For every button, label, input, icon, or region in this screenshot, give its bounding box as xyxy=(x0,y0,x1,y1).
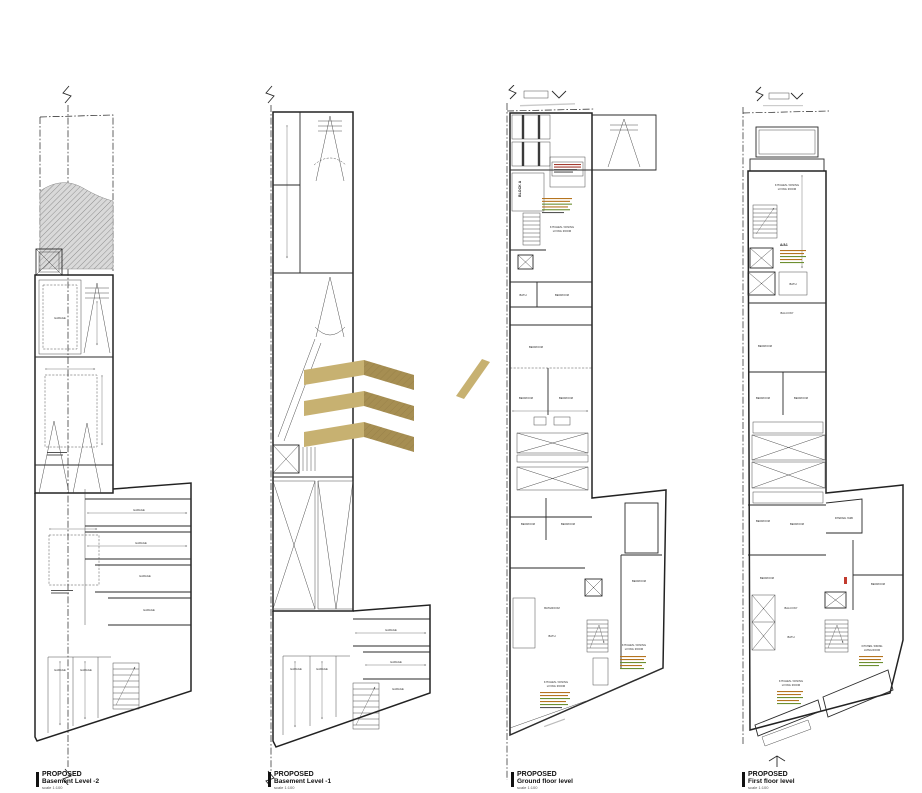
room-label: LIVING ROOM xyxy=(782,683,800,687)
title-block-basement-1: PROPOSED Basement Level -1 scale 1:100 xyxy=(268,771,331,790)
room-label: BATH xyxy=(787,635,794,639)
stairs-symbol xyxy=(113,663,139,709)
room-label: BEDROOM xyxy=(758,344,772,348)
room-label: KITCHEN / DINING xyxy=(775,183,799,187)
room-label: KITCHEN / DINING xyxy=(544,680,568,684)
room-label: LIVING ROOM xyxy=(864,649,880,652)
stairs-symbol xyxy=(753,205,777,238)
room-label: GARAGE xyxy=(80,668,92,672)
footer-level: First floor level xyxy=(748,778,795,785)
terrace-edge xyxy=(762,720,811,746)
block-label: BLOCK A xyxy=(518,180,522,197)
internal-yard xyxy=(752,435,825,488)
footer-scale: scale 1:100 xyxy=(517,785,573,790)
footer-scale: scale 1:100 xyxy=(42,785,99,790)
ramp-symbol xyxy=(84,283,110,353)
room-label: BEDROOM xyxy=(559,396,573,400)
terrace-grid xyxy=(512,115,550,166)
schedule-note-lines xyxy=(540,692,570,708)
room-label: BEDROOM xyxy=(871,582,885,586)
break-line-icon xyxy=(63,86,71,103)
terrace-grid xyxy=(625,503,658,553)
terrace-grid xyxy=(759,130,815,154)
room-label: LIVING ROOM xyxy=(625,647,643,651)
footer-proposed: PROPOSED xyxy=(517,771,573,778)
room-label: GARAGE xyxy=(290,667,302,671)
gold-ribbon-bars xyxy=(304,360,414,452)
floor-plan-basement-2: GARAGE GARAGE GARAGE GARAGE GARAGE GARAG… xyxy=(23,85,218,785)
room-label: KITCHEN / DINING xyxy=(779,679,803,683)
footer-level: Basement Level -2 xyxy=(42,778,99,785)
title-block-basement-2: PROPOSED Basement Level -2 scale 1:100 xyxy=(36,771,99,790)
title-block-first: PROPOSED First floor level scale 1:100 xyxy=(742,771,795,790)
ground-floor-drawing: BLOCK A KITCHEN / DINING LIVING ROOM BAT… xyxy=(496,85,711,790)
unit-label: A/A1 xyxy=(780,243,788,247)
courtyard-grid xyxy=(517,433,588,490)
footer-level: Basement Level -1 xyxy=(274,778,331,785)
ramp-symbol xyxy=(39,421,69,493)
void-shaft xyxy=(752,595,775,650)
room-label: LIVING ROOM xyxy=(547,684,565,688)
room-label: BATH xyxy=(519,293,526,297)
ramp-symbol xyxy=(314,116,346,181)
room-label: LIVING ROOM xyxy=(778,187,796,191)
floor-plan-ground: BLOCK A KITCHEN / DINING LIVING ROOM BAT… xyxy=(496,85,711,790)
lift-shaft-symbol xyxy=(825,592,846,608)
room-label: BEDROOM xyxy=(794,396,808,400)
title-bar xyxy=(36,772,39,787)
basement-2-drawing: GARAGE GARAGE GARAGE GARAGE GARAGE GARAG… xyxy=(23,85,218,785)
room-label: GARAGE xyxy=(139,574,151,578)
lift-shaft-symbol xyxy=(748,248,775,295)
shaft-grid xyxy=(513,598,535,648)
title-bar xyxy=(742,772,745,787)
footer-proposed: PROPOSED xyxy=(748,771,795,778)
stairs-symbol xyxy=(825,620,848,652)
room-label: GARAGE xyxy=(316,667,328,671)
room-label: BALCONY xyxy=(780,311,793,315)
room-label: BALCONY xyxy=(784,606,797,610)
room-label: GARAGE xyxy=(385,628,397,632)
room-label: BEDROOM xyxy=(632,579,646,583)
room-label: BEDROOM xyxy=(555,293,569,297)
break-line-icon xyxy=(266,86,274,103)
terrace-grid xyxy=(823,670,893,717)
room-label: KITCHEN / DINING xyxy=(622,643,646,647)
room-label: GARAGE xyxy=(54,668,66,672)
footer-proposed: PROPOSED xyxy=(42,771,99,778)
schedule-note-lines xyxy=(777,691,803,704)
north-arrow-icon xyxy=(769,756,785,767)
title-bar xyxy=(268,772,271,787)
room-label: KITCHEN / DINING xyxy=(862,645,883,648)
balcony-grid xyxy=(753,492,823,503)
room-label: BEDROOM xyxy=(561,522,575,526)
room-label: BATH xyxy=(789,282,796,286)
room-label: GARAGE xyxy=(133,508,145,512)
ramp-symbol xyxy=(315,277,345,337)
room-label: BEDROOM xyxy=(790,522,804,526)
footer-level: Ground floor level xyxy=(517,778,573,785)
room-label: GARAGE xyxy=(390,660,402,664)
micro-note xyxy=(47,452,67,456)
room-label: BATH xyxy=(548,634,555,638)
first-floor-drawing: KITCHEN / DINING LIVING ROOM A/A1 BATH B… xyxy=(733,85,922,790)
gold-slash xyxy=(456,359,490,399)
street-name-faint xyxy=(544,718,565,727)
stairs-symbol xyxy=(587,620,608,652)
footer-scale: scale 1:100 xyxy=(748,785,795,790)
lift-shaft-symbol xyxy=(518,255,533,269)
street-arrow-icons xyxy=(509,85,575,106)
room-label: INTERNAL YARD xyxy=(835,517,853,520)
room-label: GARAGE xyxy=(54,316,66,320)
room-label: BEDROOM xyxy=(529,345,543,349)
schedule-note-lines xyxy=(859,656,883,666)
red-note-lines xyxy=(554,164,581,173)
floor-plan-first: KITCHEN / DINING LIVING ROOM A/A1 BATH B… xyxy=(733,85,922,790)
lift-shaft-symbol xyxy=(585,579,602,596)
ramp-symbol xyxy=(73,423,101,493)
balcony-grid xyxy=(750,159,824,171)
room-label: KITCHEN / DINING xyxy=(550,225,574,229)
balcony-grid xyxy=(753,422,823,433)
title-block-ground: PROPOSED Ground floor level scale 1:100 xyxy=(511,771,573,790)
footer-scale: scale 1:100 xyxy=(274,785,331,790)
room-label: BEDROOM xyxy=(756,396,770,400)
room-label: BEDROOM xyxy=(756,519,770,523)
stairs-symbol xyxy=(523,213,540,245)
rock-hatch xyxy=(40,183,113,269)
stairs-symbol xyxy=(353,683,379,729)
terrace-grid xyxy=(755,700,821,736)
schedule-note-lines xyxy=(542,198,572,213)
drawing-sheet: GARAGE GARAGE GARAGE GARAGE GARAGE GARAG… xyxy=(0,0,922,793)
schedule-note-lines xyxy=(620,656,646,669)
room-label: LIVING ROOM xyxy=(553,229,571,233)
brand-watermark-logo xyxy=(298,348,503,466)
room-label: GARAGE xyxy=(143,608,155,612)
street-arrow-icons xyxy=(756,87,803,106)
footer-proposed: PROPOSED xyxy=(274,771,331,778)
room-label: GARAGE xyxy=(135,541,147,545)
room-label: GARAGE xyxy=(392,687,404,691)
room-label: BATHROOM xyxy=(544,606,560,610)
title-bar xyxy=(511,772,514,787)
red-marker xyxy=(844,577,847,584)
ramp-symbol xyxy=(608,119,640,167)
room-label: BEDROOM xyxy=(521,522,535,526)
room-label: BEDROOM xyxy=(760,576,774,580)
room-label: BEDROOM xyxy=(519,396,533,400)
